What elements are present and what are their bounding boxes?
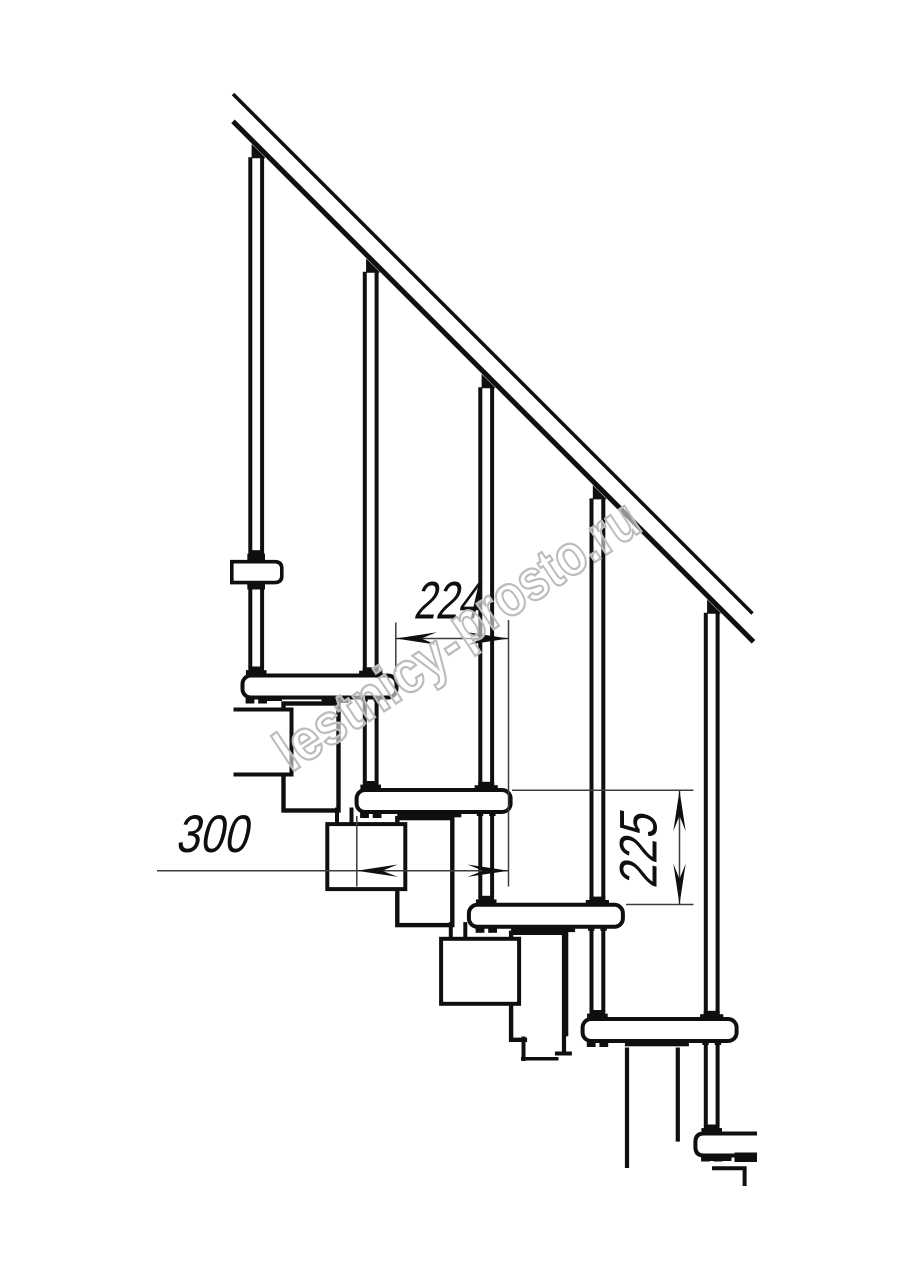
svg-text:300: 300 <box>172 805 258 864</box>
svg-text:225: 225 <box>609 804 668 892</box>
